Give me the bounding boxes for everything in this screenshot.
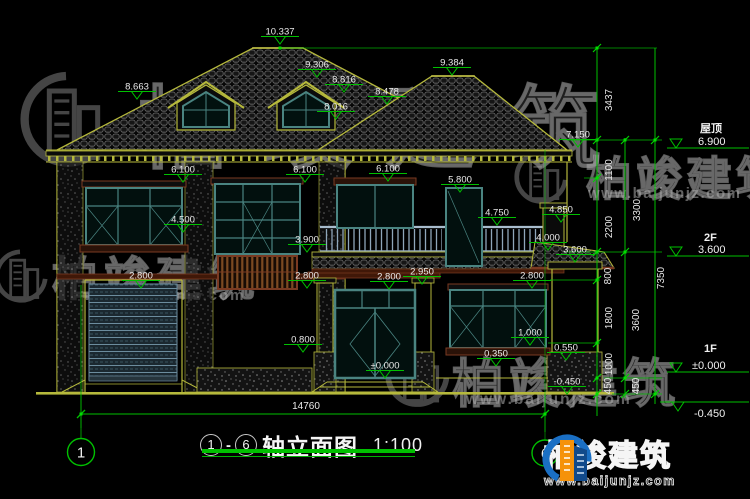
svg-text:8.016: 8.016 xyxy=(324,102,348,113)
svg-text:3.600: 3.600 xyxy=(563,245,587,256)
svg-text:6.100: 6.100 xyxy=(171,165,195,176)
svg-text:0.800: 0.800 xyxy=(291,335,315,346)
svg-text:屋顶: 屋顶 xyxy=(700,122,722,135)
svg-text:8.663: 8.663 xyxy=(125,82,149,93)
svg-text:450: 450 xyxy=(631,377,642,394)
svg-text:9.384: 9.384 xyxy=(440,58,464,69)
svg-text:800: 800 xyxy=(603,267,614,284)
title-axis-bubble-end: 6 xyxy=(235,434,257,456)
svg-text:7350: 7350 xyxy=(656,266,667,289)
chain-dimension-labels: 3437 1100 2200 800 1800 1000 450 3300 36… xyxy=(603,88,667,394)
eave-band xyxy=(46,150,572,162)
stair-window xyxy=(211,178,303,254)
svg-text:6.100: 6.100 xyxy=(293,165,317,176)
svg-text:2200: 2200 xyxy=(604,215,615,238)
level-flag-roof: 屋顶 6.900 xyxy=(667,122,749,148)
svg-text:4.000: 4.000 xyxy=(536,233,560,244)
svg-text:1: 1 xyxy=(77,445,85,462)
svg-text:1000: 1000 xyxy=(604,352,615,375)
svg-text:±0.000: ±0.000 xyxy=(692,360,726,372)
title-underline xyxy=(202,456,415,458)
svg-text:1.000: 1.000 xyxy=(518,328,542,339)
svg-text:2F: 2F xyxy=(704,232,717,244)
svg-text:2.950: 2.950 xyxy=(410,267,434,278)
svg-text:0.550: 0.550 xyxy=(554,343,578,354)
right-column xyxy=(547,262,602,392)
level-flag-2f: 2F 3.600 xyxy=(667,232,749,256)
elevation-mark: 9.384 xyxy=(433,58,471,76)
svg-text:-0.450: -0.450 xyxy=(554,377,581,388)
elevation-mark: 4.750 xyxy=(478,208,516,226)
svg-text:4.750: 4.750 xyxy=(485,208,509,219)
svg-text:2.800: 2.800 xyxy=(520,271,544,282)
svg-text:4.850: 4.850 xyxy=(549,205,573,216)
svg-text:2.800: 2.800 xyxy=(295,271,319,282)
svg-text:3300: 3300 xyxy=(632,198,643,221)
svg-text:9.306: 9.306 xyxy=(305,60,329,71)
garage-door xyxy=(62,280,205,392)
level-flag-1f: 1F ±0.000 xyxy=(667,343,749,372)
elevation-mark: 7.150 xyxy=(559,130,597,148)
svg-text:3600: 3600 xyxy=(631,308,642,331)
title-underline xyxy=(202,449,415,453)
svg-text:2.800: 2.800 xyxy=(377,272,401,283)
svg-text:2.800: 2.800 xyxy=(129,271,153,282)
svg-text:3437: 3437 xyxy=(604,88,615,111)
elevation-mark: 0.800 xyxy=(284,335,322,353)
level-flag-ground: -0.450 xyxy=(660,402,749,420)
svg-text:1F: 1F xyxy=(704,343,717,355)
dimension-ticks xyxy=(593,44,659,398)
svg-text:8.478: 8.478 xyxy=(375,87,399,98)
overall-width-dimension: 14760 xyxy=(292,401,320,412)
cad-elevation-drawing: 柏竣建筑 柏竣建筑 www.baijunjz.com 柏竣建筑 www.baij… xyxy=(0,0,750,499)
brand-logo: 柏竣建筑 www.baijunjz.com xyxy=(540,431,750,499)
elevation-mark: 8.663 xyxy=(118,82,156,100)
louver-panel xyxy=(218,256,297,289)
svg-text:0.350: 0.350 xyxy=(484,349,508,360)
svg-text:3.900: 3.900 xyxy=(295,235,319,246)
ground-line xyxy=(36,392,614,395)
svg-text:450: 450 xyxy=(603,377,614,394)
brand-logo-icon xyxy=(540,431,598,489)
title-axis-bubble-start: 1 xyxy=(200,434,222,456)
svg-text:7.150: 7.150 xyxy=(566,130,590,141)
balcony-door xyxy=(446,188,482,266)
svg-text:6.900: 6.900 xyxy=(698,136,726,148)
svg-text:8.816: 8.816 xyxy=(332,75,356,86)
window-2f-right xyxy=(334,178,416,228)
svg-text:-0.450: -0.450 xyxy=(694,408,725,420)
svg-text:1800: 1800 xyxy=(604,306,615,329)
svg-text:5.800: 5.800 xyxy=(448,175,472,186)
svg-text:1100: 1100 xyxy=(604,159,615,181)
axis-bubble-1: 1 xyxy=(68,439,95,466)
elevation-mark: 10.337 xyxy=(261,27,299,45)
svg-text:6.100: 6.100 xyxy=(376,164,400,175)
planter-wall xyxy=(197,368,312,392)
svg-text:±0.000: ±0.000 xyxy=(371,361,400,372)
svg-text:4.500: 4.500 xyxy=(171,215,195,226)
svg-text:3.600: 3.600 xyxy=(698,244,726,256)
svg-text:10.337: 10.337 xyxy=(265,27,294,38)
elevation-svg: 3437 1100 2200 800 1800 1000 450 3300 36… xyxy=(0,0,750,499)
